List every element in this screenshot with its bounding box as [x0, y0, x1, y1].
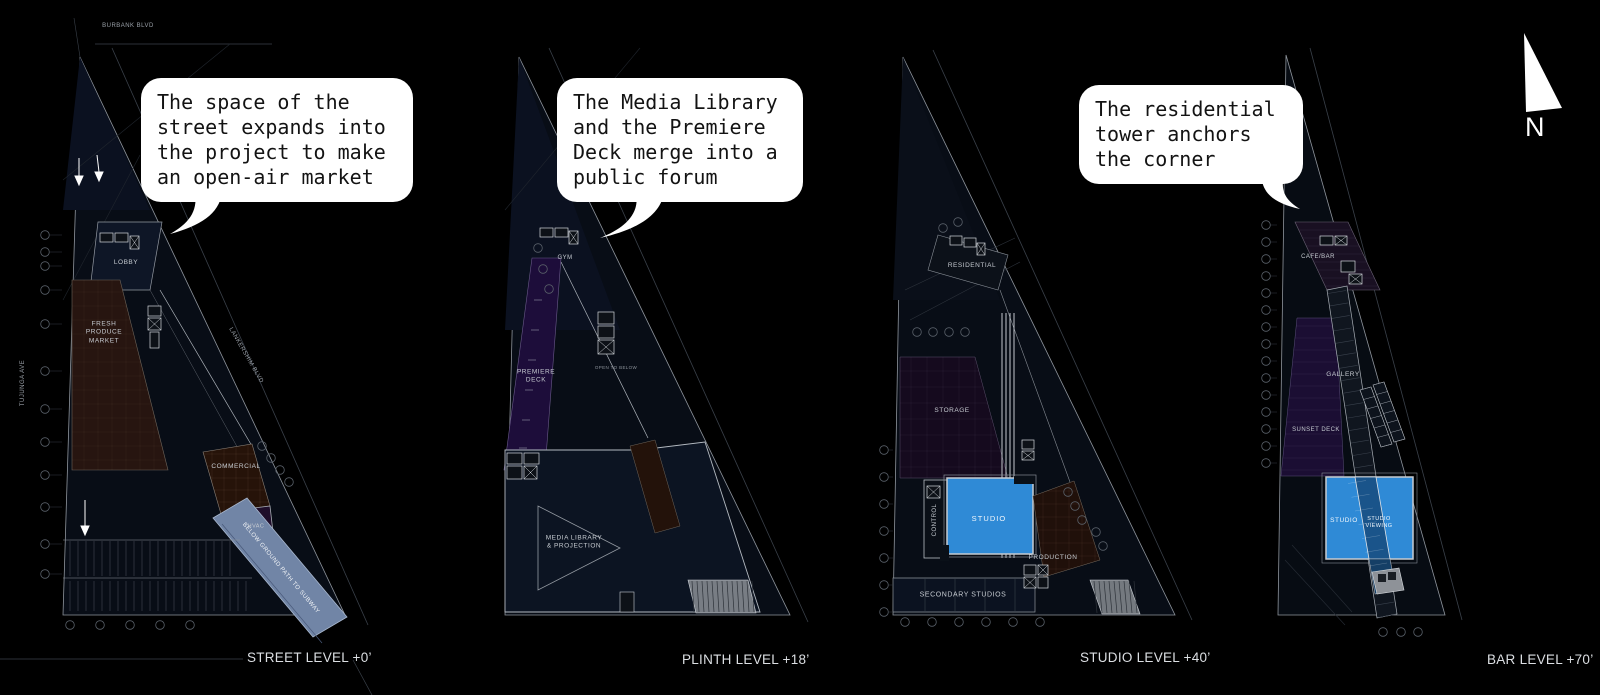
room-label-cafebar: CAFE/BAR	[1301, 254, 1335, 262]
room-label-media-library: MEDIA LIBRARY & PROJECTION	[546, 535, 603, 552]
room-label-lobby: LOBBY	[114, 259, 138, 267]
presentation-board: The space of the street expands into the…	[0, 0, 1600, 695]
room-label-premiere-deck: PREMIERE DECK	[517, 369, 555, 386]
level-label-street: STREET LEVEL +0’	[247, 650, 372, 665]
room-label-studio-3: STUDIO	[972, 514, 1007, 524]
room-label-studio-4: STUDIO	[1330, 517, 1358, 525]
street-label-tujunga: TUJUNGA AVE	[20, 360, 28, 406]
room-label-secondary-studios: SECONDARY STUDIOS	[920, 590, 1007, 599]
room-label-sunset-deck: SUNSET DECK	[1292, 427, 1340, 435]
bar-core	[1372, 568, 1404, 594]
speech-bubble-2: The Media Library and the Premiere Deck …	[557, 78, 803, 202]
room-label-production: PRODUCTION	[1029, 554, 1078, 562]
street-label-burbank: BURBANK BLVD	[102, 23, 154, 31]
level-label-plinth: PLINTH LEVEL +18’	[682, 652, 810, 667]
room-label-market: FRESH PRODUCE MARKET	[86, 320, 122, 345]
room-label-studio-viewing: STUDIO VIEWING	[1366, 516, 1393, 530]
room-label-gallery: GALLERY	[1326, 371, 1360, 379]
room-label-open-to-below: OPEN TO BELOW	[595, 365, 637, 371]
level-label-bar: BAR LEVEL +70’	[1487, 652, 1593, 667]
room-label-residential: RESIDENTIAL	[948, 262, 996, 270]
room-label-control: CONTROL	[932, 504, 940, 537]
level-label-studio: STUDIO LEVEL +40’	[1080, 650, 1211, 665]
room-label-storage: STORAGE	[934, 407, 969, 415]
speech-bubble-1: The space of the street expands into the…	[141, 78, 413, 202]
north-arrow-icon	[1524, 33, 1562, 112]
room-label-gym: GYM	[557, 255, 572, 263]
speech-bubble-3: The residential tower anchors the corner	[1079, 85, 1303, 184]
room-label-commercial: COMMERCIAL	[211, 463, 260, 471]
north-label: N	[1525, 112, 1545, 143]
